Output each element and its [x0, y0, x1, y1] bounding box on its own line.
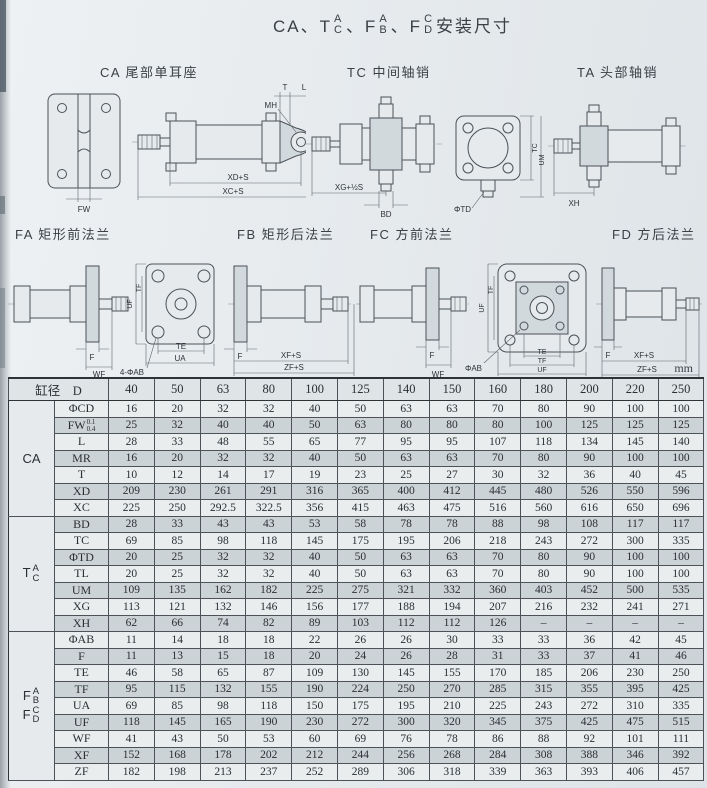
dim-label-f: F	[606, 351, 611, 360]
value-cell: 445	[475, 483, 521, 500]
value-cell: 480	[521, 483, 567, 500]
value-cell: 170	[475, 665, 521, 682]
value-cell: 339	[475, 764, 521, 781]
ca-diagram: FW T L MH XD+S XC+S	[38, 80, 306, 216]
dim-label-cell: XD	[55, 483, 109, 500]
value-cell: 50	[200, 731, 246, 748]
title-suffix: 安装尺寸	[436, 12, 512, 37]
title-stack: AC	[334, 14, 344, 36]
value-cell: 24	[337, 648, 383, 665]
value-cell: 237	[246, 764, 292, 781]
value-cell: 26	[383, 632, 429, 649]
value-cell: 63	[337, 417, 383, 434]
dim-label-cell: TC	[55, 533, 109, 550]
section-label-fa: FA 矩形前法兰	[15, 224, 111, 243]
table-row: T10121417192325273032364045	[9, 467, 704, 484]
value-cell: 30	[429, 632, 475, 649]
value-cell: 80	[521, 401, 567, 418]
value-cell: 58	[154, 665, 200, 682]
value-cell: 210	[429, 698, 475, 715]
scan-edge-mark	[0, 288, 5, 368]
value-cell: 365	[337, 483, 383, 500]
dim-label-um: UM	[539, 154, 546, 165]
value-cell: 89	[292, 615, 338, 632]
value-cell: 10	[109, 467, 155, 484]
table-row: L2833485565779595107118134145140	[9, 434, 704, 451]
value-cell: 12	[154, 467, 200, 484]
value-cell: 80	[521, 566, 567, 583]
value-cell: 69	[337, 731, 383, 748]
dim-label-tf: TF	[136, 284, 143, 293]
dim-label-phiab: ΦAB	[465, 364, 482, 373]
value-cell: 62	[109, 615, 155, 632]
table-row: FABFCDΦAB11141818222626303333364245	[9, 632, 704, 649]
ca-side-view	[132, 92, 306, 200]
value-cell: 300	[612, 533, 658, 550]
value-cell: 261	[200, 483, 246, 500]
value-cell: 145	[292, 533, 338, 550]
value-cell: 32	[200, 401, 246, 418]
value-cell: 33	[475, 632, 521, 649]
value-cell: 225	[109, 500, 155, 517]
value-cell: 109	[109, 582, 155, 599]
value-cell: 117	[658, 516, 704, 533]
value-cell: 18	[246, 632, 292, 649]
value-cell: 33	[154, 434, 200, 451]
table-row: UM10913516218222527532133236040345250053…	[9, 582, 704, 599]
value-cell: 188	[383, 599, 429, 616]
dim-label-mh: MH	[265, 101, 278, 110]
value-cell: 23	[337, 467, 383, 484]
value-cell: 69	[109, 698, 155, 715]
value-cell: 90	[566, 549, 612, 566]
value-cell: 80	[475, 417, 521, 434]
value-cell: 32	[200, 566, 246, 583]
value-cell: 58	[337, 516, 383, 533]
value-cell: 232	[566, 599, 612, 616]
dim-label-cell: ΦTD	[55, 549, 109, 566]
value-cell: 88	[475, 516, 521, 533]
value-cell: 95	[383, 434, 429, 451]
value-cell: 32	[521, 467, 567, 484]
value-cell: 40	[612, 467, 658, 484]
value-cell: 230	[612, 665, 658, 682]
value-cell: 596	[658, 483, 704, 500]
value-cell: 212	[292, 747, 338, 764]
fa-side-view	[8, 266, 134, 370]
value-cell: 216	[521, 599, 567, 616]
dim-label-te: TE	[538, 349, 547, 356]
value-cell: 15	[200, 648, 246, 665]
value-cell: 243	[521, 533, 567, 550]
value-cell: 14	[200, 467, 246, 484]
value-cell: 70	[475, 450, 521, 467]
value-cell: 37	[566, 648, 612, 665]
value-cell: 500	[612, 582, 658, 599]
value-cell: 475	[612, 714, 658, 731]
table-row: XF15216817820221224425626828430838834639…	[9, 747, 704, 764]
value-cell: 18	[246, 648, 292, 665]
table-row: XC225250292.5322.53564154634755165606166…	[9, 500, 704, 517]
value-cell: 78	[429, 731, 475, 748]
value-cell: 162	[200, 582, 246, 599]
table-row: ΦTD2025323240506363708090100100	[9, 549, 704, 566]
value-cell: 125	[658, 417, 704, 434]
dim-label-f: F	[238, 352, 243, 361]
value-cell: 50	[292, 417, 338, 434]
dim-label-tc: TC	[532, 143, 539, 152]
value-cell: 31	[475, 648, 521, 665]
size-header: 250	[658, 378, 704, 401]
value-cell: 100	[612, 566, 658, 583]
value-cell: 30	[475, 467, 521, 484]
value-cell: 318	[429, 764, 475, 781]
value-cell: 250	[154, 500, 200, 517]
size-header: 200	[566, 378, 612, 401]
value-cell: 335	[658, 533, 704, 550]
value-cell: 69	[109, 533, 155, 550]
value-cell: 20	[154, 401, 200, 418]
value-cell: 86	[475, 731, 521, 748]
value-cell: 155	[246, 681, 292, 698]
value-cell: 457	[658, 764, 704, 781]
value-cell: 535	[658, 582, 704, 599]
value-cell: 146	[246, 599, 292, 616]
value-cell: 32	[200, 450, 246, 467]
dim-label-zf-s: ZF+S	[637, 365, 657, 374]
value-cell: 40	[292, 450, 338, 467]
value-cell: 112	[383, 615, 429, 632]
value-cell: 250	[383, 681, 429, 698]
value-cell: 100	[521, 417, 567, 434]
value-cell: 90	[566, 566, 612, 583]
value-cell: 332	[429, 582, 475, 599]
size-header: 63	[200, 378, 246, 401]
value-cell: 88	[521, 731, 567, 748]
value-cell: 393	[566, 764, 612, 781]
ca-end-view	[48, 94, 120, 202]
table-row: XH6266748289103112112126––––	[9, 615, 704, 632]
value-cell: 70	[475, 549, 521, 566]
value-cell: 28	[109, 516, 155, 533]
value-cell: 80	[429, 417, 475, 434]
value-cell: 63	[429, 549, 475, 566]
table-row: TACBD28334343535878788898108117117	[9, 516, 704, 533]
value-cell: 252	[292, 764, 338, 781]
value-cell: 20	[154, 450, 200, 467]
value-cell: 82	[246, 615, 292, 632]
dim-label-cell: L	[55, 434, 109, 451]
value-cell: 87	[246, 665, 292, 682]
table-body: CAΦCD1620323240506363708090100100FW0.10.…	[9, 401, 704, 781]
value-cell: 100	[658, 566, 704, 583]
size-header: 150	[429, 378, 475, 401]
table-row: ZF18219821323725228930631833936339340645…	[9, 764, 704, 781]
value-cell: 53	[292, 516, 338, 533]
section-label-ta: TA 头部轴销	[577, 62, 658, 81]
value-cell: 18	[200, 632, 246, 649]
value-cell: 42	[612, 632, 658, 649]
value-cell: 70	[475, 566, 521, 583]
catalog-page: CA、TAC、FAB、FCD 安装尺寸 CA 尾部单耳座 TC 中间轴销 TA …	[0, 0, 707, 788]
value-cell: 345	[475, 714, 521, 731]
value-cell: 243	[521, 698, 567, 715]
value-cell: 50	[337, 566, 383, 583]
group-label: TAC	[9, 516, 55, 632]
dim-label-cell: XC	[55, 500, 109, 517]
dim-label-uf: UF	[479, 303, 486, 312]
dim-label-xd-s: XD+S	[227, 173, 248, 182]
section-label-fb: FB 矩形后法兰	[237, 224, 334, 243]
value-cell: 155	[429, 665, 475, 682]
value-cell: 76	[383, 731, 429, 748]
dim-label-uf: UF	[127, 299, 134, 308]
value-cell: 316	[292, 483, 338, 500]
value-cell: 33	[521, 648, 567, 665]
value-cell: 244	[337, 747, 383, 764]
value-cell: 185	[521, 665, 567, 682]
value-cell: –	[658, 615, 704, 632]
value-cell: 292.5	[200, 500, 246, 517]
value-cell: 140	[658, 434, 704, 451]
value-cell: 13	[154, 648, 200, 665]
dim-label-cell: TF	[55, 681, 109, 698]
header-row: 缸径 D40506380100125140150160180200220250	[9, 378, 704, 401]
dim-label-cell: UA	[55, 698, 109, 715]
value-cell: 63	[429, 450, 475, 467]
value-cell: 40	[292, 566, 338, 583]
value-cell: 16	[109, 450, 155, 467]
value-cell: 20	[109, 549, 155, 566]
dim-label-cell: XG	[55, 599, 109, 616]
value-cell: 516	[475, 500, 521, 517]
section-label-ca: CA 尾部单耳座	[100, 62, 198, 81]
value-cell: 100	[612, 549, 658, 566]
value-cell: 17	[246, 467, 292, 484]
value-cell: 125	[566, 417, 612, 434]
title-stack-top: A	[334, 14, 344, 25]
value-cell: 272	[337, 714, 383, 731]
table-row: TL2025323240506363708090100100	[9, 566, 704, 583]
value-cell: 40	[292, 549, 338, 566]
dim-label-t: T	[283, 83, 288, 92]
value-cell: 125	[612, 417, 658, 434]
value-cell: 152	[109, 747, 155, 764]
value-cell: 308	[521, 747, 567, 764]
value-cell: 121	[154, 599, 200, 616]
value-cell: 346	[612, 747, 658, 764]
value-cell: 256	[383, 747, 429, 764]
title-stack: AB	[379, 14, 388, 36]
value-cell: 100	[612, 401, 658, 418]
ta-diagram: XH	[548, 84, 704, 220]
value-cell: 145	[154, 714, 200, 731]
dimension-table-wrap: 缸径 D40506380100125140150160180200220250 …	[8, 377, 704, 781]
value-cell: –	[612, 615, 658, 632]
dim-label-xh: XH	[568, 199, 579, 208]
value-cell: 36	[566, 632, 612, 649]
table-row: TF95115132155190224250270285315355395425	[9, 681, 704, 698]
value-cell: –	[566, 615, 612, 632]
title-stack: CD	[424, 14, 434, 36]
value-cell: 100	[658, 549, 704, 566]
value-cell: 22	[292, 632, 338, 649]
value-cell: 550	[612, 483, 658, 500]
value-cell: 103	[337, 615, 383, 632]
value-cell: 107	[475, 434, 521, 451]
value-cell: 80	[383, 417, 429, 434]
dim-label-f: F	[90, 353, 95, 362]
table-row: TC698598118145175195206218243272300335	[9, 533, 704, 550]
dim-label-cell: ΦCD	[55, 401, 109, 418]
value-cell: 178	[200, 747, 246, 764]
dim-label-uf2: UF	[537, 367, 546, 374]
value-cell: 50	[337, 549, 383, 566]
value-cell: 415	[337, 500, 383, 517]
dim-label-xf-s: XF+S	[634, 351, 654, 360]
value-cell: 32	[200, 549, 246, 566]
table-row: MR1620323240506363708090100100	[9, 450, 704, 467]
size-header: 40	[109, 378, 155, 401]
title-stack-bottom: B	[379, 25, 388, 36]
size-header: 125	[337, 378, 383, 401]
value-cell: 322.5	[246, 500, 292, 517]
value-cell: 16	[109, 401, 155, 418]
value-cell: 78	[383, 516, 429, 533]
value-cell: 268	[429, 747, 475, 764]
value-cell: 207	[475, 599, 521, 616]
scan-edge-mark	[0, 196, 5, 214]
value-cell: 85	[154, 533, 200, 550]
value-cell: 284	[475, 747, 521, 764]
value-cell: 175	[337, 698, 383, 715]
value-cell: 375	[521, 714, 567, 731]
value-cell: 165	[200, 714, 246, 731]
value-cell: 310	[612, 698, 658, 715]
title-stack-bottom: D	[424, 25, 434, 36]
table-row: CAΦCD1620323240506363708090100100	[9, 401, 704, 418]
size-header: 160	[475, 378, 521, 401]
value-cell: 425	[658, 681, 704, 698]
size-header: 140	[383, 378, 429, 401]
value-cell: 425	[566, 714, 612, 731]
value-cell: 80	[521, 549, 567, 566]
value-cell: 696	[658, 500, 704, 517]
dim-label-phitd: ΦTD	[454, 205, 471, 214]
value-cell: 95	[429, 434, 475, 451]
value-cell: 463	[383, 500, 429, 517]
value-cell: 41	[612, 648, 658, 665]
value-cell: 452	[566, 582, 612, 599]
value-cell: 271	[658, 599, 704, 616]
value-cell: 117	[612, 516, 658, 533]
value-cell: 26	[337, 632, 383, 649]
value-cell: 412	[429, 483, 475, 500]
value-cell: 90	[566, 450, 612, 467]
title-seg: 、F	[391, 12, 422, 37]
value-cell: 275	[337, 582, 383, 599]
section-label-fd: FD 方后法兰	[612, 224, 695, 243]
unit-label: mm	[674, 361, 693, 376]
table-corner-header: 缸径 D	[9, 378, 109, 401]
value-cell: 300	[383, 714, 429, 731]
value-cell: 25	[109, 417, 155, 434]
dim-label-cell: XH	[55, 615, 109, 632]
value-cell: 63	[429, 401, 475, 418]
value-cell: 98	[200, 698, 246, 715]
table-row: XG11312113214615617718819420721623224127…	[9, 599, 704, 616]
value-cell: 32	[246, 566, 292, 583]
value-cell: 48	[200, 434, 246, 451]
value-cell: –	[521, 615, 567, 632]
value-cell: 98	[521, 516, 567, 533]
value-cell: 406	[612, 764, 658, 781]
value-cell: 100	[658, 450, 704, 467]
section-label-tc: TC 中间轴销	[347, 62, 430, 81]
table-row: F11131518202426283133374146	[9, 648, 704, 665]
fc-front-view	[484, 264, 586, 376]
value-cell: 195	[383, 533, 429, 550]
value-cell: 111	[658, 731, 704, 748]
value-cell: 400	[383, 483, 429, 500]
value-cell: 206	[566, 665, 612, 682]
value-cell: 40	[292, 401, 338, 418]
ta-side-view	[548, 105, 688, 196]
dim-label-cell: MR	[55, 450, 109, 467]
value-cell: 145	[612, 434, 658, 451]
value-cell: 101	[612, 731, 658, 748]
value-cell: 92	[566, 731, 612, 748]
value-cell: 100	[612, 450, 658, 467]
value-cell: 132	[200, 681, 246, 698]
value-cell: 650	[612, 500, 658, 517]
value-cell: 560	[521, 500, 567, 517]
value-cell: 145	[383, 665, 429, 682]
value-cell: 108	[566, 516, 612, 533]
dim-label-cell: ZF	[55, 764, 109, 781]
stack-label: AB	[33, 687, 39, 706]
value-cell: 98	[200, 533, 246, 550]
value-cell: 19	[292, 467, 338, 484]
dim-label-xf-s: XF+S	[281, 351, 301, 360]
value-cell: 25	[154, 566, 200, 583]
value-cell: 43	[200, 516, 246, 533]
value-cell: 616	[566, 500, 612, 517]
value-cell: 132	[200, 599, 246, 616]
dim-label-te: TE	[176, 342, 186, 351]
value-cell: 285	[475, 681, 521, 698]
value-cell: 60	[292, 731, 338, 748]
group-label: FABFCD	[9, 632, 55, 781]
value-cell: 95	[109, 681, 155, 698]
value-cell: 272	[566, 698, 612, 715]
value-cell: 32	[246, 401, 292, 418]
value-cell: 45	[658, 632, 704, 649]
dim-label-cell: F	[55, 648, 109, 665]
value-cell: 11	[109, 648, 155, 665]
value-cell: 113	[109, 599, 155, 616]
value-cell: 134	[566, 434, 612, 451]
value-cell: 20	[292, 648, 338, 665]
value-cell: 28	[109, 434, 155, 451]
value-cell: 32	[246, 450, 292, 467]
value-cell: 230	[154, 483, 200, 500]
value-cell: 250	[658, 665, 704, 682]
value-cell: 182	[109, 764, 155, 781]
value-cell: 118	[246, 698, 292, 715]
value-cell: 270	[429, 681, 475, 698]
value-cell: 41	[109, 731, 155, 748]
